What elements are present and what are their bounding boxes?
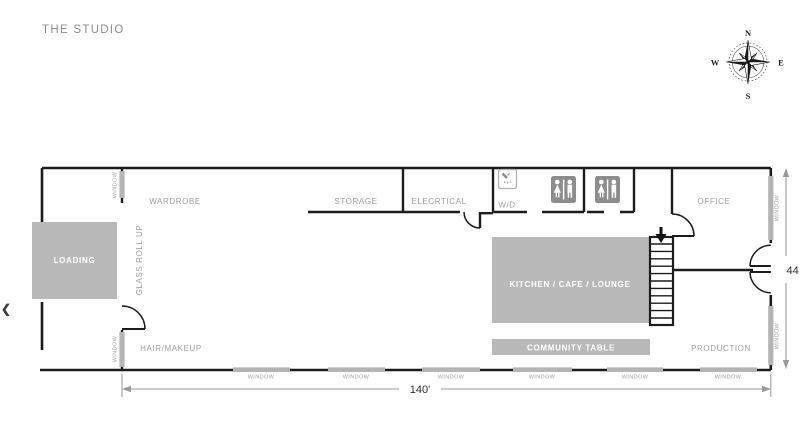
office-door-arc — [672, 214, 694, 236]
window-label: WINDOW — [775, 194, 781, 221]
loading-label: LOADING — [54, 256, 96, 265]
double-door-arc-bottom — [750, 272, 771, 293]
kitchen-area: KITCHEN / CAFE / LOUNGE — [492, 237, 649, 323]
window-label: WINDOW — [113, 171, 119, 198]
room-label-glass-roll-up: GLASS ROLL UP — [135, 225, 144, 296]
shower-icon — [499, 170, 517, 189]
kitchen-label: KITCHEN / CAFE / LOUNGE — [510, 280, 631, 289]
loading-area: LOADING — [32, 222, 117, 299]
compass-north-label: N — [745, 28, 752, 38]
room-label-wardrobe: WARDROBE — [149, 197, 201, 206]
room-label-hair-makeup: HAIR/MAKEUP — [140, 344, 202, 353]
restroom-sign-icon — [595, 176, 620, 203]
window-label: WINDOW — [775, 322, 781, 349]
window-label: WINDOW — [343, 375, 370, 381]
stairs — [650, 227, 673, 325]
floor-plan-page: THE STUDIO ❮ LOADING KITCHEN / CAFE / LO… — [0, 0, 800, 433]
window-label: WINDOW — [715, 375, 742, 381]
restroom-sign-icon — [551, 176, 576, 203]
window-label: WINDOW — [113, 335, 119, 362]
glass-rollup-door-arc — [122, 306, 145, 329]
electrical-door-arc — [464, 212, 480, 228]
room-label-electrical: ELECRTICAL — [411, 197, 466, 206]
compass-rose-icon: N E S W — [711, 28, 784, 101]
double-door-arc-top — [750, 245, 771, 266]
room-label-storage: STORAGE — [334, 197, 377, 206]
window-label: WINDOW — [438, 375, 465, 381]
window-label: WINDOW — [622, 375, 649, 381]
community-table-label: COMMUNITY TABLE — [527, 344, 615, 353]
depth-dimension-label: 44 — [787, 265, 799, 277]
width-dimension-label: 140' — [410, 384, 430, 396]
community-table: COMMUNITY TABLE — [492, 339, 650, 355]
room-label-production: PRODUCTION — [691, 344, 751, 353]
window-label: WINDOW — [248, 375, 275, 381]
room-label-wd: W/D — [498, 201, 515, 210]
compass-west-label: W — [711, 58, 720, 68]
compass-east-label: E — [778, 58, 784, 68]
compass-south-label: S — [746, 91, 751, 101]
floor-plan: LOADING KITCHEN / CAFE / LOUNGE COMMUNIT… — [0, 0, 800, 433]
window-label: WINDOW — [529, 375, 556, 381]
room-label-office: OFFICE — [698, 197, 731, 206]
